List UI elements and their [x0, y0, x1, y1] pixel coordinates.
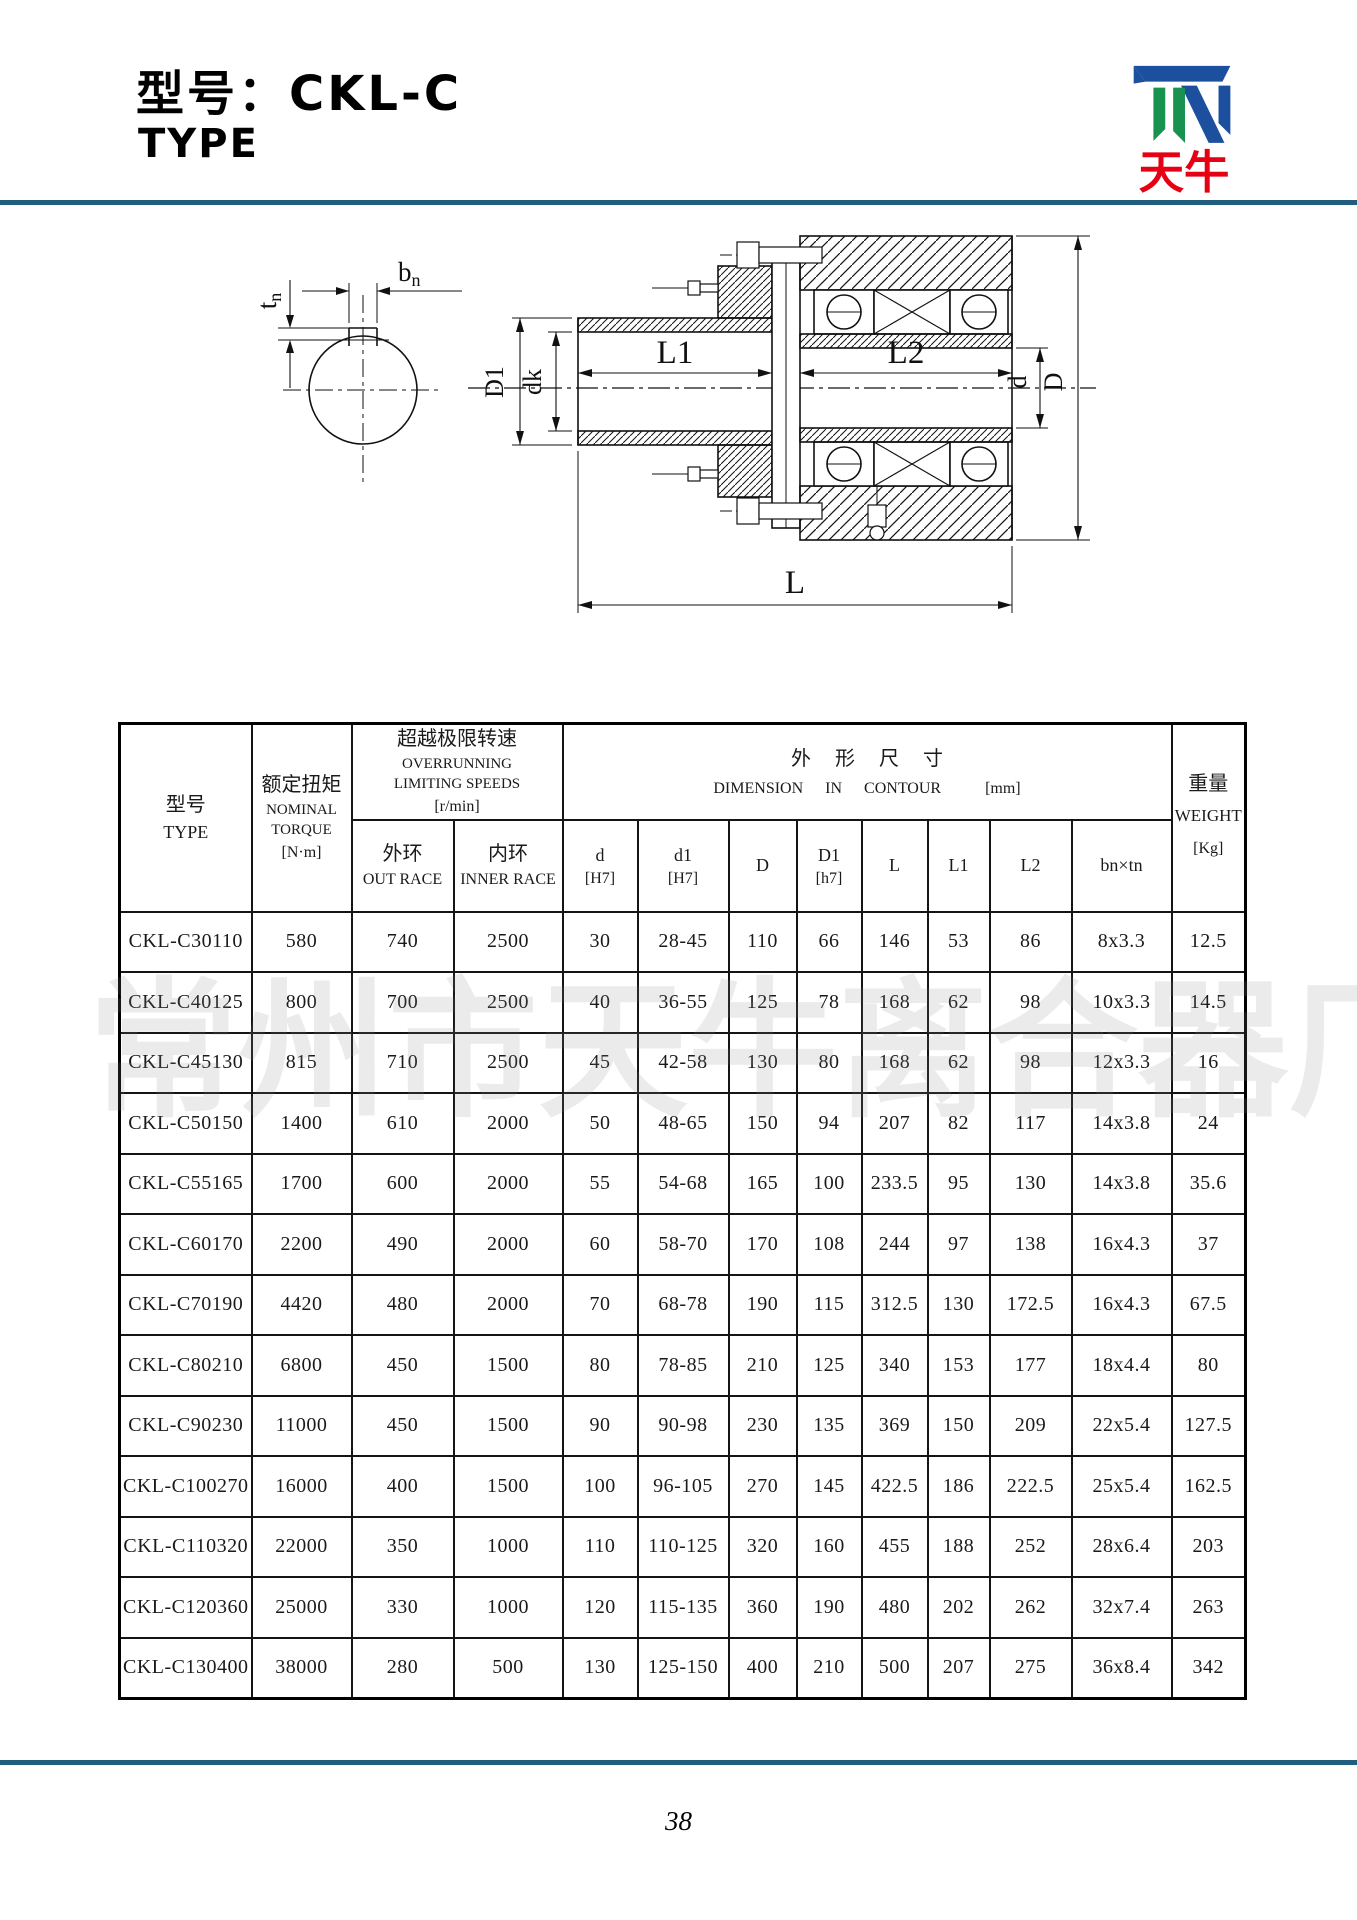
cell-bn_tn: 14x3.8 [1072, 1093, 1172, 1154]
page-number: 38 [0, 1806, 1357, 1837]
cell-nominal_torque: 1400 [252, 1093, 352, 1154]
cell-d: 70 [563, 1275, 638, 1336]
cell-bn_tn: 25x5.4 [1072, 1456, 1172, 1517]
cell-d1: 125-150 [638, 1638, 729, 1699]
dimension-label-cn: 外形尺寸 [564, 742, 1171, 776]
cell-L1: 188 [928, 1517, 990, 1578]
cell-d: 55 [563, 1154, 638, 1215]
dim-label-l: L [785, 565, 805, 601]
cell-nominal_torque: 4420 [252, 1275, 352, 1336]
cell-d1: 42-58 [638, 1033, 729, 1094]
out-race-cn: 外环 [353, 840, 453, 869]
cell-L2: 262 [990, 1577, 1072, 1638]
cell-L2: 98 [990, 972, 1072, 1033]
cell-d1: 78-85 [638, 1335, 729, 1396]
table-row: CKL-C55165170060020005554-68165100233.59… [120, 1154, 1246, 1215]
table-row: CKL-C902301100045015009090-9823013536915… [120, 1396, 1246, 1457]
cell-L1: 150 [928, 1396, 990, 1457]
cell-D1: 135 [797, 1396, 862, 1457]
cell-weight: 37 [1172, 1214, 1246, 1275]
table-row: CKL-C50150140061020005048-65150942078211… [120, 1093, 1246, 1154]
cell-nominal_torque: 11000 [252, 1396, 352, 1457]
cell-out_race: 710 [352, 1033, 454, 1094]
cell-out_race: 450 [352, 1335, 454, 1396]
cell-d: 130 [563, 1638, 638, 1699]
cell-D1: 80 [797, 1033, 862, 1094]
dim-label-bn: bn [398, 257, 421, 290]
cell-inner_race: 2000 [454, 1154, 563, 1215]
cell-weight: 14.5 [1172, 972, 1246, 1033]
cell-D: 270 [729, 1456, 797, 1517]
table-row: CKL-C3011058074025003028-451106614653868… [120, 912, 1246, 973]
cell-L1: 95 [928, 1154, 990, 1215]
cell-weight: 80 [1172, 1335, 1246, 1396]
cell-d: 80 [563, 1335, 638, 1396]
cell-inner_race: 2500 [454, 912, 563, 973]
cell-L1: 62 [928, 1033, 990, 1094]
dim-label-dk: dk [518, 369, 547, 395]
cell-bn_tn: 36x8.4 [1072, 1638, 1172, 1699]
dim-label-tn: tn [252, 293, 285, 310]
footer-rule [0, 1760, 1357, 1765]
cell-inner_race: 500 [454, 1638, 563, 1699]
cell-L2: 98 [990, 1033, 1072, 1094]
cell-d: 40 [563, 972, 638, 1033]
cell-D: 320 [729, 1517, 797, 1578]
cell-type: CKL-C120360 [120, 1577, 252, 1638]
cell-D1: 190 [797, 1577, 862, 1638]
cell-nominal_torque: 580 [252, 912, 352, 973]
col-header-speed: 超越极限转速 OVERRUNNING LIMITING SPEEDS [r/mi… [352, 724, 563, 820]
cell-out_race: 350 [352, 1517, 454, 1578]
cell-L2: 177 [990, 1335, 1072, 1396]
cell-inner_race: 2000 [454, 1093, 563, 1154]
cell-L: 422.5 [862, 1456, 928, 1517]
cell-L: 168 [862, 972, 928, 1033]
torque-unit: [N·m] [253, 841, 351, 865]
cell-nominal_torque: 6800 [252, 1335, 352, 1396]
technical-drawing: bn tn [0, 205, 1357, 725]
page-subtitle: TYPE [138, 121, 259, 167]
col-header-big-d1: D1[h7] [797, 820, 862, 912]
cell-type: CKL-C50150 [120, 1093, 252, 1154]
cell-L: 340 [862, 1335, 928, 1396]
cell-weight: 12.5 [1172, 912, 1246, 973]
cell-D1: 160 [797, 1517, 862, 1578]
cell-D: 170 [729, 1214, 797, 1275]
cell-nominal_torque: 16000 [252, 1456, 352, 1517]
cell-L: 168 [862, 1033, 928, 1094]
cell-nominal_torque: 22000 [252, 1517, 352, 1578]
cell-out_race: 330 [352, 1577, 454, 1638]
weight-unit: [Kg] [1173, 833, 1245, 865]
cell-L1: 130 [928, 1275, 990, 1336]
cell-L: 312.5 [862, 1275, 928, 1336]
cell-bn_tn: 22x5.4 [1072, 1396, 1172, 1457]
cell-bn_tn: 14x3.8 [1072, 1154, 1172, 1215]
cell-d: 60 [563, 1214, 638, 1275]
cell-weight: 342 [1172, 1638, 1246, 1699]
cell-d: 30 [563, 912, 638, 973]
cell-L: 244 [862, 1214, 928, 1275]
cell-d1: 54-68 [638, 1154, 729, 1215]
speed-label-en2: LIMITING SPEEDS [353, 774, 562, 794]
cell-nominal_torque: 800 [252, 972, 352, 1033]
cell-bn_tn: 8x3.3 [1072, 912, 1172, 973]
cell-D: 165 [729, 1154, 797, 1215]
cell-inner_race: 2000 [454, 1214, 563, 1275]
cell-type: CKL-C30110 [120, 912, 252, 973]
cell-d1: 96-105 [638, 1456, 729, 1517]
cell-L1: 53 [928, 912, 990, 973]
col-header-type: 型号 TYPE [120, 724, 252, 912]
col-header-big-d: D [729, 820, 797, 912]
cell-D1: 210 [797, 1638, 862, 1699]
cell-D1: 66 [797, 912, 862, 973]
cell-L1: 62 [928, 972, 990, 1033]
cell-L1: 153 [928, 1335, 990, 1396]
cell-D: 360 [729, 1577, 797, 1638]
col-header-d1: d1[H7] [638, 820, 729, 912]
cell-D: 110 [729, 912, 797, 973]
cell-L2: 252 [990, 1517, 1072, 1578]
cell-weight: 67.5 [1172, 1275, 1246, 1336]
cell-type: CKL-C90230 [120, 1396, 252, 1457]
cell-d: 110 [563, 1517, 638, 1578]
cell-d: 90 [563, 1396, 638, 1457]
type-label-en: TYPE [121, 820, 251, 844]
page-title: 型号：CKL-C [136, 54, 462, 124]
cell-out_race: 700 [352, 972, 454, 1033]
cell-D1: 115 [797, 1275, 862, 1336]
cell-L: 480 [862, 1577, 928, 1638]
cell-out_race: 400 [352, 1456, 454, 1517]
dim-label-small-d: d [1003, 376, 1032, 389]
cell-bn_tn: 16x4.3 [1072, 1214, 1172, 1275]
cell-type: CKL-C45130 [120, 1033, 252, 1094]
cell-L2: 275 [990, 1638, 1072, 1699]
cell-nominal_torque: 38000 [252, 1638, 352, 1699]
cell-D1: 100 [797, 1154, 862, 1215]
cell-D: 150 [729, 1093, 797, 1154]
cell-L: 455 [862, 1517, 928, 1578]
out-race-en: OUT RACE [353, 869, 453, 891]
cell-d1: 68-78 [638, 1275, 729, 1336]
cell-d1: 36-55 [638, 972, 729, 1033]
cell-D1: 125 [797, 1335, 862, 1396]
cell-d: 45 [563, 1033, 638, 1094]
table-row: CKL-C60170220049020006058-70170108244971… [120, 1214, 1246, 1275]
type-label-cn: 型号 [121, 791, 251, 820]
cell-bn_tn: 32x7.4 [1072, 1577, 1172, 1638]
cell-L2: 117 [990, 1093, 1072, 1154]
table-row: CKL-C120360250003301000120115-1353601904… [120, 1577, 1246, 1638]
cell-inner_race: 2500 [454, 972, 563, 1033]
cell-d: 50 [563, 1093, 638, 1154]
inner-race-cn: 内环 [455, 840, 562, 869]
inner-race-en: INNER RACE [455, 869, 562, 891]
cell-d1: 90-98 [638, 1396, 729, 1457]
cell-weight: 35.6 [1172, 1154, 1246, 1215]
speed-label-cn: 超越极限转速 [353, 725, 562, 754]
cell-d1: 115-135 [638, 1577, 729, 1638]
cell-inner_race: 2500 [454, 1033, 563, 1094]
cell-bn_tn: 12x3.3 [1072, 1033, 1172, 1094]
cell-inner_race: 1500 [454, 1396, 563, 1457]
cell-L2: 222.5 [990, 1456, 1072, 1517]
col-header-torque: 额定扭矩 NOMINAL TORQUE [N·m] [252, 724, 352, 912]
dim-label-l2: L2 [888, 335, 925, 371]
weight-label-cn: 重量 [1173, 770, 1245, 799]
cell-L2: 209 [990, 1396, 1072, 1457]
cell-type: CKL-C80210 [120, 1335, 252, 1396]
table-row: CKL-C4513081571025004542-581308016862981… [120, 1033, 1246, 1094]
cell-D1: 108 [797, 1214, 862, 1275]
cell-d1: 48-65 [638, 1093, 729, 1154]
shaft-section-view [278, 280, 462, 485]
cell-D: 400 [729, 1638, 797, 1699]
cell-D1: 78 [797, 972, 862, 1033]
dim-label-big-d: D [1039, 373, 1068, 392]
table-row: CKL-C70190442048020007068-78190115312.51… [120, 1275, 1246, 1336]
dimension-label-en: DIMENSION IN CONTOUR [mm] [564, 776, 1171, 802]
cell-out_race: 280 [352, 1638, 454, 1699]
col-header-l2: L2 [990, 820, 1072, 912]
cell-L1: 97 [928, 1214, 990, 1275]
speed-label-en1: OVERRUNNING [353, 754, 562, 774]
cell-weight: 162.5 [1172, 1456, 1246, 1517]
table-row: CKL-C80210680045015008078-85210125340153… [120, 1335, 1246, 1396]
table-row: CKL-C10027016000400150010096-10527014542… [120, 1456, 1246, 1517]
cell-L: 500 [862, 1638, 928, 1699]
cell-bn_tn: 18x4.4 [1072, 1335, 1172, 1396]
dim-label-l1: L1 [657, 335, 694, 371]
cell-L1: 82 [928, 1093, 990, 1154]
logo-tn-mark [1134, 66, 1231, 143]
col-header-l: L [862, 820, 928, 912]
cell-type: CKL-C100270 [120, 1456, 252, 1517]
cell-type: CKL-C60170 [120, 1214, 252, 1275]
cell-d1: 28-45 [638, 912, 729, 973]
col-header-out-race: 外环 OUT RACE [352, 820, 454, 912]
cell-weight: 24 [1172, 1093, 1246, 1154]
cell-inner_race: 2000 [454, 1275, 563, 1336]
spec-table-body: CKL-C3011058074025003028-451106614653868… [120, 912, 1246, 1699]
cell-D1: 145 [797, 1456, 862, 1517]
logo-company-name: 天牛 [1139, 148, 1230, 198]
dim-label-d1: D1 [480, 366, 509, 398]
table-row: CKL-C110320220003501000110110-1253201604… [120, 1517, 1246, 1578]
cell-weight: 16 [1172, 1033, 1246, 1094]
speed-unit: [r/min] [353, 795, 562, 819]
cell-out_race: 480 [352, 1275, 454, 1336]
cell-L: 146 [862, 912, 928, 973]
cell-type: CKL-C55165 [120, 1154, 252, 1215]
spec-table: 型号 TYPE 额定扭矩 NOMINAL TORQUE [N·m] 超越极限转速… [118, 722, 1247, 1700]
cell-nominal_torque: 2200 [252, 1214, 352, 1275]
cell-L: 369 [862, 1396, 928, 1457]
catalog-page: { "header": { "title": "型号：CKL-C", "subt… [0, 0, 1357, 1920]
cell-type: CKL-C70190 [120, 1275, 252, 1336]
cell-D: 190 [729, 1275, 797, 1336]
cell-bn_tn: 16x4.3 [1072, 1275, 1172, 1336]
cell-inner_race: 1000 [454, 1517, 563, 1578]
cell-inner_race: 1000 [454, 1577, 563, 1638]
company-logo: 天牛 [1118, 56, 1250, 204]
cell-d1: 58-70 [638, 1214, 729, 1275]
cell-bn_tn: 10x3.3 [1072, 972, 1172, 1033]
cell-out_race: 740 [352, 912, 454, 973]
cell-D: 230 [729, 1396, 797, 1457]
cell-out_race: 600 [352, 1154, 454, 1215]
cell-L: 207 [862, 1093, 928, 1154]
col-header-bn-tn: bn×tn [1072, 820, 1172, 912]
cell-d1: 110-125 [638, 1517, 729, 1578]
cell-out_race: 610 [352, 1093, 454, 1154]
table-row: CKL-C13040038000280500130125-15040021050… [120, 1638, 1246, 1699]
cell-out_race: 490 [352, 1214, 454, 1275]
cell-d: 120 [563, 1577, 638, 1638]
torque-label-cn: 额定扭矩 [253, 771, 351, 800]
cell-L2: 172.5 [990, 1275, 1072, 1336]
torque-label-en1: NOMINAL [253, 800, 351, 820]
torque-label-en2: TORQUE [253, 820, 351, 840]
col-header-inner-race: 内环 INNER RACE [454, 820, 563, 912]
col-header-l1: L1 [928, 820, 990, 912]
cell-nominal_torque: 25000 [252, 1577, 352, 1638]
cell-D: 130 [729, 1033, 797, 1094]
cell-L1: 186 [928, 1456, 990, 1517]
cell-L2: 86 [990, 912, 1072, 973]
col-header-d: d[H7] [563, 820, 638, 912]
cell-L1: 202 [928, 1577, 990, 1638]
cell-D1: 94 [797, 1093, 862, 1154]
cell-L2: 138 [990, 1214, 1072, 1275]
cell-type: CKL-C40125 [120, 972, 252, 1033]
weight-label-en: WEIGHT [1173, 799, 1245, 833]
cell-L1: 207 [928, 1638, 990, 1699]
cell-type: CKL-C130400 [120, 1638, 252, 1699]
cell-out_race: 450 [352, 1396, 454, 1457]
cell-L2: 130 [990, 1154, 1072, 1215]
col-header-weight: 重量 WEIGHT [Kg] [1172, 724, 1246, 912]
cell-type: CKL-C110320 [120, 1517, 252, 1578]
coupling-section-view [468, 236, 1096, 540]
cell-D: 210 [729, 1335, 797, 1396]
cell-nominal_torque: 1700 [252, 1154, 352, 1215]
cell-d: 100 [563, 1456, 638, 1517]
cell-weight: 127.5 [1172, 1396, 1246, 1457]
cell-inner_race: 1500 [454, 1335, 563, 1396]
cell-nominal_torque: 815 [252, 1033, 352, 1094]
cell-weight: 263 [1172, 1577, 1246, 1638]
col-header-dimension: 外形尺寸 DIMENSION IN CONTOUR [mm] [563, 724, 1172, 820]
cell-bn_tn: 28x6.4 [1072, 1517, 1172, 1578]
cell-D: 125 [729, 972, 797, 1033]
cell-L: 233.5 [862, 1154, 928, 1215]
cell-weight: 203 [1172, 1517, 1246, 1578]
table-row: CKL-C4012580070025004036-551257816862981… [120, 972, 1246, 1033]
cell-inner_race: 1500 [454, 1456, 563, 1517]
